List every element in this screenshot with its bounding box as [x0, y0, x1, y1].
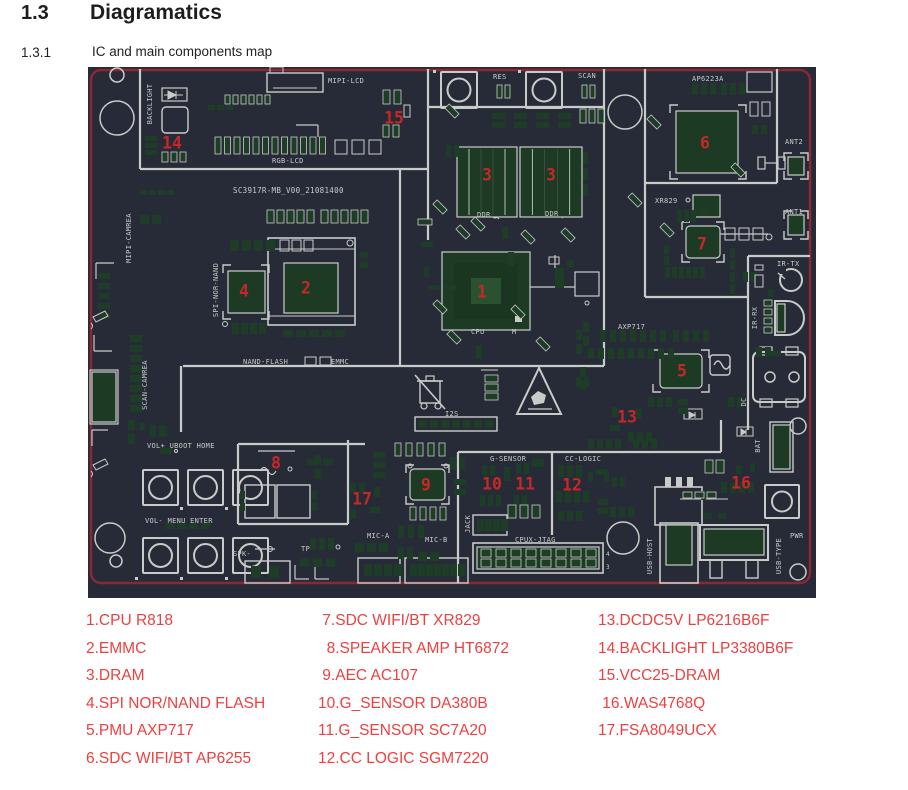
pad: [428, 443, 434, 456]
pad: [446, 145, 451, 157]
pad: [418, 552, 427, 561]
pad: [265, 95, 270, 104]
legend-item: 5.PMU AXP717: [86, 717, 265, 745]
pad: [558, 511, 564, 521]
pad: [439, 443, 445, 456]
pad: [433, 70, 436, 73]
pad: [315, 469, 321, 479]
pad: [167, 190, 174, 195]
pad: [249, 95, 254, 104]
pad: [410, 507, 416, 520]
pad: [350, 509, 356, 519]
section-number: 1.3: [21, 2, 49, 25]
silk-label: SPI-NOR-NAND: [212, 263, 220, 317]
pad: [485, 519, 492, 531]
ic-chip: [666, 525, 692, 565]
page-title: Diagramatics: [90, 1, 222, 25]
pad: [360, 252, 368, 258]
pad: [660, 330, 666, 342]
pad: [693, 267, 698, 278]
pad: [98, 283, 110, 289]
pad: [571, 549, 581, 557]
pad: [721, 482, 727, 493]
pad: [541, 559, 551, 567]
pad: [648, 348, 654, 359]
pad: [556, 549, 566, 557]
pcb-board-image: MIPI-LCDRGB-LCDSC3917R-MB_V00_21081400BA…: [88, 67, 816, 598]
legend-item: 12.CC LOGIC SGM7220: [318, 745, 509, 773]
pcb-diagram: MIPI-LCDRGB-LCDSC3917R-MB_V00_21081400BA…: [88, 67, 816, 598]
pad: [555, 268, 564, 288]
pad: [700, 210, 708, 215]
silk-label: VOL- MENU ENTER: [145, 517, 213, 525]
pad: [450, 564, 457, 576]
silk-label: DC: [740, 397, 748, 406]
pad: [225, 577, 228, 580]
silk-label: EMMC: [331, 358, 349, 366]
pad: [232, 323, 239, 334]
pad: [307, 459, 317, 465]
pad: [730, 83, 736, 95]
pad: [319, 538, 325, 550]
pad: [442, 564, 449, 576]
pad: [241, 323, 248, 334]
pad: [588, 439, 594, 449]
silk-label: G-SENSOR: [490, 455, 527, 463]
pad: [700, 267, 705, 278]
pad: [312, 491, 317, 499]
pad: [300, 558, 309, 567]
component-marker: 17: [352, 490, 372, 509]
pad: [693, 330, 699, 342]
silk-label: SC3917R-MB_V00_21081400: [233, 186, 344, 195]
pad: [768, 289, 773, 297]
pad: [434, 564, 441, 576]
component-marker: 1: [477, 283, 487, 302]
pad: [526, 549, 536, 557]
pad: [233, 95, 238, 104]
pad: [485, 420, 493, 428]
pad: [307, 210, 314, 223]
pad: [313, 558, 322, 567]
pad: [508, 252, 514, 266]
silk-label: CPU: [471, 328, 485, 336]
pad: [180, 577, 183, 580]
pad: [673, 330, 679, 342]
pad: [367, 543, 376, 552]
pad: [162, 427, 167, 436]
pad: [666, 397, 672, 407]
pad: [496, 559, 506, 567]
pad: [583, 491, 589, 503]
pad: [180, 152, 186, 162]
pad: [750, 463, 755, 472]
pad: [225, 137, 231, 154]
pad: [730, 284, 735, 294]
pad: [496, 495, 501, 506]
pad: [454, 489, 466, 495]
pad: [691, 210, 696, 222]
legend-item: 6.SDC WIFI/BT AP6255: [86, 745, 265, 773]
pad: [514, 495, 519, 506]
silk-label: I2S: [445, 410, 459, 418]
pad: [683, 330, 689, 342]
silk-label: BACKLIGHT: [146, 83, 154, 124]
legend-item: 14.BACKLIGHT LP3380B6F: [598, 635, 793, 663]
silk-label: CC-LOGIC: [565, 455, 601, 463]
pad: [606, 439, 612, 449]
pad: [417, 443, 423, 456]
silk-label: USB-TYPE: [775, 538, 783, 574]
pad: [752, 125, 758, 134]
pad: [586, 559, 596, 567]
pad: [612, 477, 617, 487]
pad: [597, 439, 603, 449]
pad: [283, 330, 293, 337]
pad: [665, 477, 671, 487]
silk-label: 4: [606, 551, 610, 558]
pad: [267, 210, 274, 223]
silk-label: ANT1: [785, 208, 803, 216]
pad: [266, 240, 275, 251]
pad: [208, 105, 215, 110]
pad: [277, 210, 284, 223]
component-marker: 13: [617, 408, 637, 427]
silk-label: IR-RX: [751, 306, 759, 329]
pad: [373, 462, 385, 468]
silk-label: M: [512, 328, 517, 336]
pad: [225, 507, 228, 510]
pad: [638, 348, 644, 359]
pad: [514, 122, 527, 128]
silk-label: ANT2: [785, 138, 803, 146]
pad: [721, 83, 727, 95]
pad: [590, 85, 595, 98]
pad: [630, 330, 636, 342]
pad: [250, 323, 257, 334]
pad: [297, 210, 304, 223]
pad: [310, 137, 316, 154]
pad: [312, 503, 317, 511]
ic-chip: [704, 529, 764, 555]
pad: [524, 463, 529, 474]
silk-label: IR-TX: [777, 260, 800, 268]
subsection-title: IC and main components map: [92, 44, 272, 59]
pad: [331, 210, 338, 223]
pad: [394, 564, 402, 576]
pad: [226, 105, 233, 110]
component-marker: 3: [546, 166, 556, 185]
pad: [583, 336, 589, 346]
silk-label: SCAN-CAMREA: [141, 360, 149, 410]
silk-label: MIC-B: [425, 536, 448, 544]
pad: [254, 240, 263, 251]
pad: [430, 552, 439, 561]
pad: [140, 215, 149, 224]
component-marker: 4: [239, 282, 249, 301]
pad: [586, 549, 596, 557]
silk-label: MIPI-CAMREA: [125, 213, 133, 263]
pad: [234, 137, 240, 154]
silk-label: VOL+ UBOOT HOME: [147, 442, 215, 450]
pad: [668, 348, 674, 359]
pad: [418, 564, 425, 576]
legend-item: 9.AEC AC107: [318, 662, 509, 690]
legend-item: 8.SPEAKER AMP HT6872: [318, 635, 509, 663]
pad: [430, 420, 438, 428]
pad: [628, 507, 634, 517]
pad: [532, 505, 540, 518]
pad: [398, 547, 404, 559]
pad: [361, 210, 368, 223]
pad: [410, 564, 417, 576]
pad: [441, 420, 449, 428]
ic-chip: [92, 372, 116, 422]
pad: [253, 137, 259, 154]
pad: [588, 348, 594, 359]
pad: [651, 439, 657, 449]
pad: [567, 260, 574, 267]
pad: [424, 267, 429, 277]
pad: [716, 460, 724, 473]
silk-label: XR829: [655, 197, 678, 205]
pad: [764, 318, 772, 324]
pad: [272, 137, 278, 154]
pad: [619, 507, 625, 517]
pad: [743, 272, 748, 282]
pad: [450, 457, 456, 470]
pad: [217, 105, 224, 110]
pad: [321, 210, 328, 223]
pad: [351, 210, 358, 223]
pad: [374, 564, 382, 576]
component-marker: 11: [515, 475, 535, 494]
pad: [730, 248, 735, 258]
silk-label: RGB-LCD: [272, 157, 304, 165]
pad: [764, 309, 772, 315]
ic-chip: [788, 157, 804, 175]
pad: [373, 452, 385, 458]
pad: [251, 566, 261, 578]
ic-chip: [788, 215, 804, 235]
pad: [326, 558, 335, 567]
pad: [145, 150, 157, 155]
legend-item: 13.DCDC5V LP6216B6F: [598, 607, 793, 635]
legend-item: 15.VCC25-DRAM: [598, 662, 793, 690]
pad: [323, 459, 333, 465]
pad: [420, 507, 426, 520]
legend-item: 4.SPI NOR/NAND FLASH: [86, 690, 265, 718]
legend-item: 3.DRAM: [86, 662, 265, 690]
pad: [444, 285, 456, 290]
pad: [678, 408, 688, 414]
pad: [583, 322, 589, 332]
pad: [764, 300, 772, 306]
pad: [650, 330, 656, 342]
pad: [394, 90, 401, 104]
legend-column: 1.CPU R8182.EMMC3.DRAM4.SPI NOR/NAND FLA…: [86, 607, 265, 773]
pad: [180, 507, 183, 510]
pad: [480, 495, 485, 506]
pad: [710, 83, 716, 95]
pad: [598, 348, 604, 359]
subsection-number: 1.3.1: [21, 45, 51, 60]
pad: [580, 367, 586, 377]
pad: [518, 70, 521, 73]
pad: [440, 507, 446, 520]
pad: [516, 463, 521, 474]
silk-label: AP6223A: [692, 75, 724, 83]
legend-column: 13.DCDC5V LP6216B6F14.BACKLIGHT LP3380B6…: [598, 607, 793, 745]
pad: [620, 477, 625, 487]
silk-label: SCAN: [578, 72, 596, 80]
pad: [477, 519, 484, 531]
pad: [730, 272, 735, 282]
pad: [419, 420, 427, 428]
pad: [150, 425, 156, 437]
pad: [687, 477, 693, 487]
pad: [476, 345, 482, 359]
pad: [672, 267, 677, 278]
pad: [240, 491, 245, 499]
pad: [536, 122, 549, 128]
pad: [589, 109, 595, 123]
legend-item: 2.EMMC: [86, 635, 265, 663]
component-marker: 2: [301, 279, 311, 298]
silk-label: PWR: [790, 532, 804, 540]
silk-label: DDR: [545, 210, 559, 218]
pad: [520, 505, 528, 518]
pad: [764, 327, 772, 333]
silk-label: MIC-A: [367, 532, 390, 540]
component-marker: 5: [677, 362, 687, 381]
pad: [695, 492, 704, 498]
component-marker: 6: [700, 134, 710, 153]
pad: [536, 113, 549, 119]
pad: [145, 143, 157, 148]
pad: [492, 122, 505, 128]
pad: [771, 351, 781, 356]
pad: [739, 83, 745, 95]
pad: [701, 83, 707, 95]
pad: [282, 137, 288, 154]
pad: [648, 397, 654, 407]
pad: [718, 513, 726, 519]
pad: [379, 543, 388, 552]
component-marker: 15: [384, 109, 404, 128]
pad: [269, 566, 279, 578]
pad: [571, 559, 581, 567]
pad: [618, 348, 624, 359]
silk-label: TP: [301, 545, 310, 553]
pad: [511, 549, 521, 557]
silk-label: AXP717: [618, 323, 645, 331]
pad: [418, 219, 432, 225]
pad: [600, 330, 606, 342]
pad: [676, 477, 682, 487]
pad: [463, 420, 471, 428]
ic-chip: [284, 263, 338, 313]
pad: [459, 457, 465, 470]
pad: [730, 260, 735, 270]
pad: [430, 507, 436, 520]
pad: [322, 330, 332, 337]
pad: [598, 499, 608, 505]
pad: [485, 375, 498, 382]
pad: [162, 152, 168, 162]
pad: [679, 267, 684, 278]
pad: [384, 564, 392, 576]
pad: [598, 508, 608, 514]
pad: [458, 564, 465, 576]
pad: [230, 240, 239, 251]
pad: [556, 559, 566, 567]
pad: [497, 85, 502, 98]
pad: [140, 423, 145, 431]
pad: [620, 330, 626, 342]
pad: [532, 459, 544, 467]
component-marker: 10: [482, 475, 502, 494]
pad: [98, 303, 110, 309]
pad: [705, 460, 713, 473]
pad: [360, 262, 368, 268]
pad: [496, 549, 506, 557]
pad: [395, 443, 401, 456]
pad: [408, 525, 414, 538]
pad: [241, 95, 246, 104]
pad: [640, 330, 646, 342]
pad: [508, 505, 516, 518]
pad: [335, 330, 345, 337]
pad: [598, 109, 604, 123]
component-marker: 7: [697, 235, 707, 254]
pad: [244, 137, 250, 154]
pad: [583, 184, 588, 196]
pad: [558, 113, 571, 119]
pad: [242, 240, 251, 251]
pad: [263, 137, 269, 154]
pad: [257, 95, 262, 104]
pad: [610, 507, 616, 517]
pad: [728, 397, 734, 407]
pad: [488, 495, 493, 506]
pad: [642, 439, 648, 449]
pad: [677, 210, 682, 222]
pad: [704, 513, 712, 519]
ic-chip: [773, 425, 790, 469]
component-marker: 3: [482, 166, 492, 185]
pad: [171, 152, 177, 162]
legend-item: 1.CPU R818: [86, 607, 265, 635]
pad: [678, 399, 688, 405]
pad: [320, 137, 326, 154]
pad: [604, 472, 609, 482]
pad: [664, 245, 669, 254]
pad: [418, 525, 424, 538]
pad: [130, 345, 142, 352]
pad: [428, 285, 440, 290]
pad: [583, 168, 588, 180]
pad: [657, 397, 663, 407]
pad: [485, 384, 498, 391]
component-marker: 8: [271, 454, 281, 473]
pad: [664, 256, 669, 265]
pad: [541, 549, 551, 557]
silk-label: JACK: [464, 514, 472, 533]
pad: [426, 564, 433, 576]
pad: [765, 347, 771, 357]
pad: [145, 136, 157, 141]
